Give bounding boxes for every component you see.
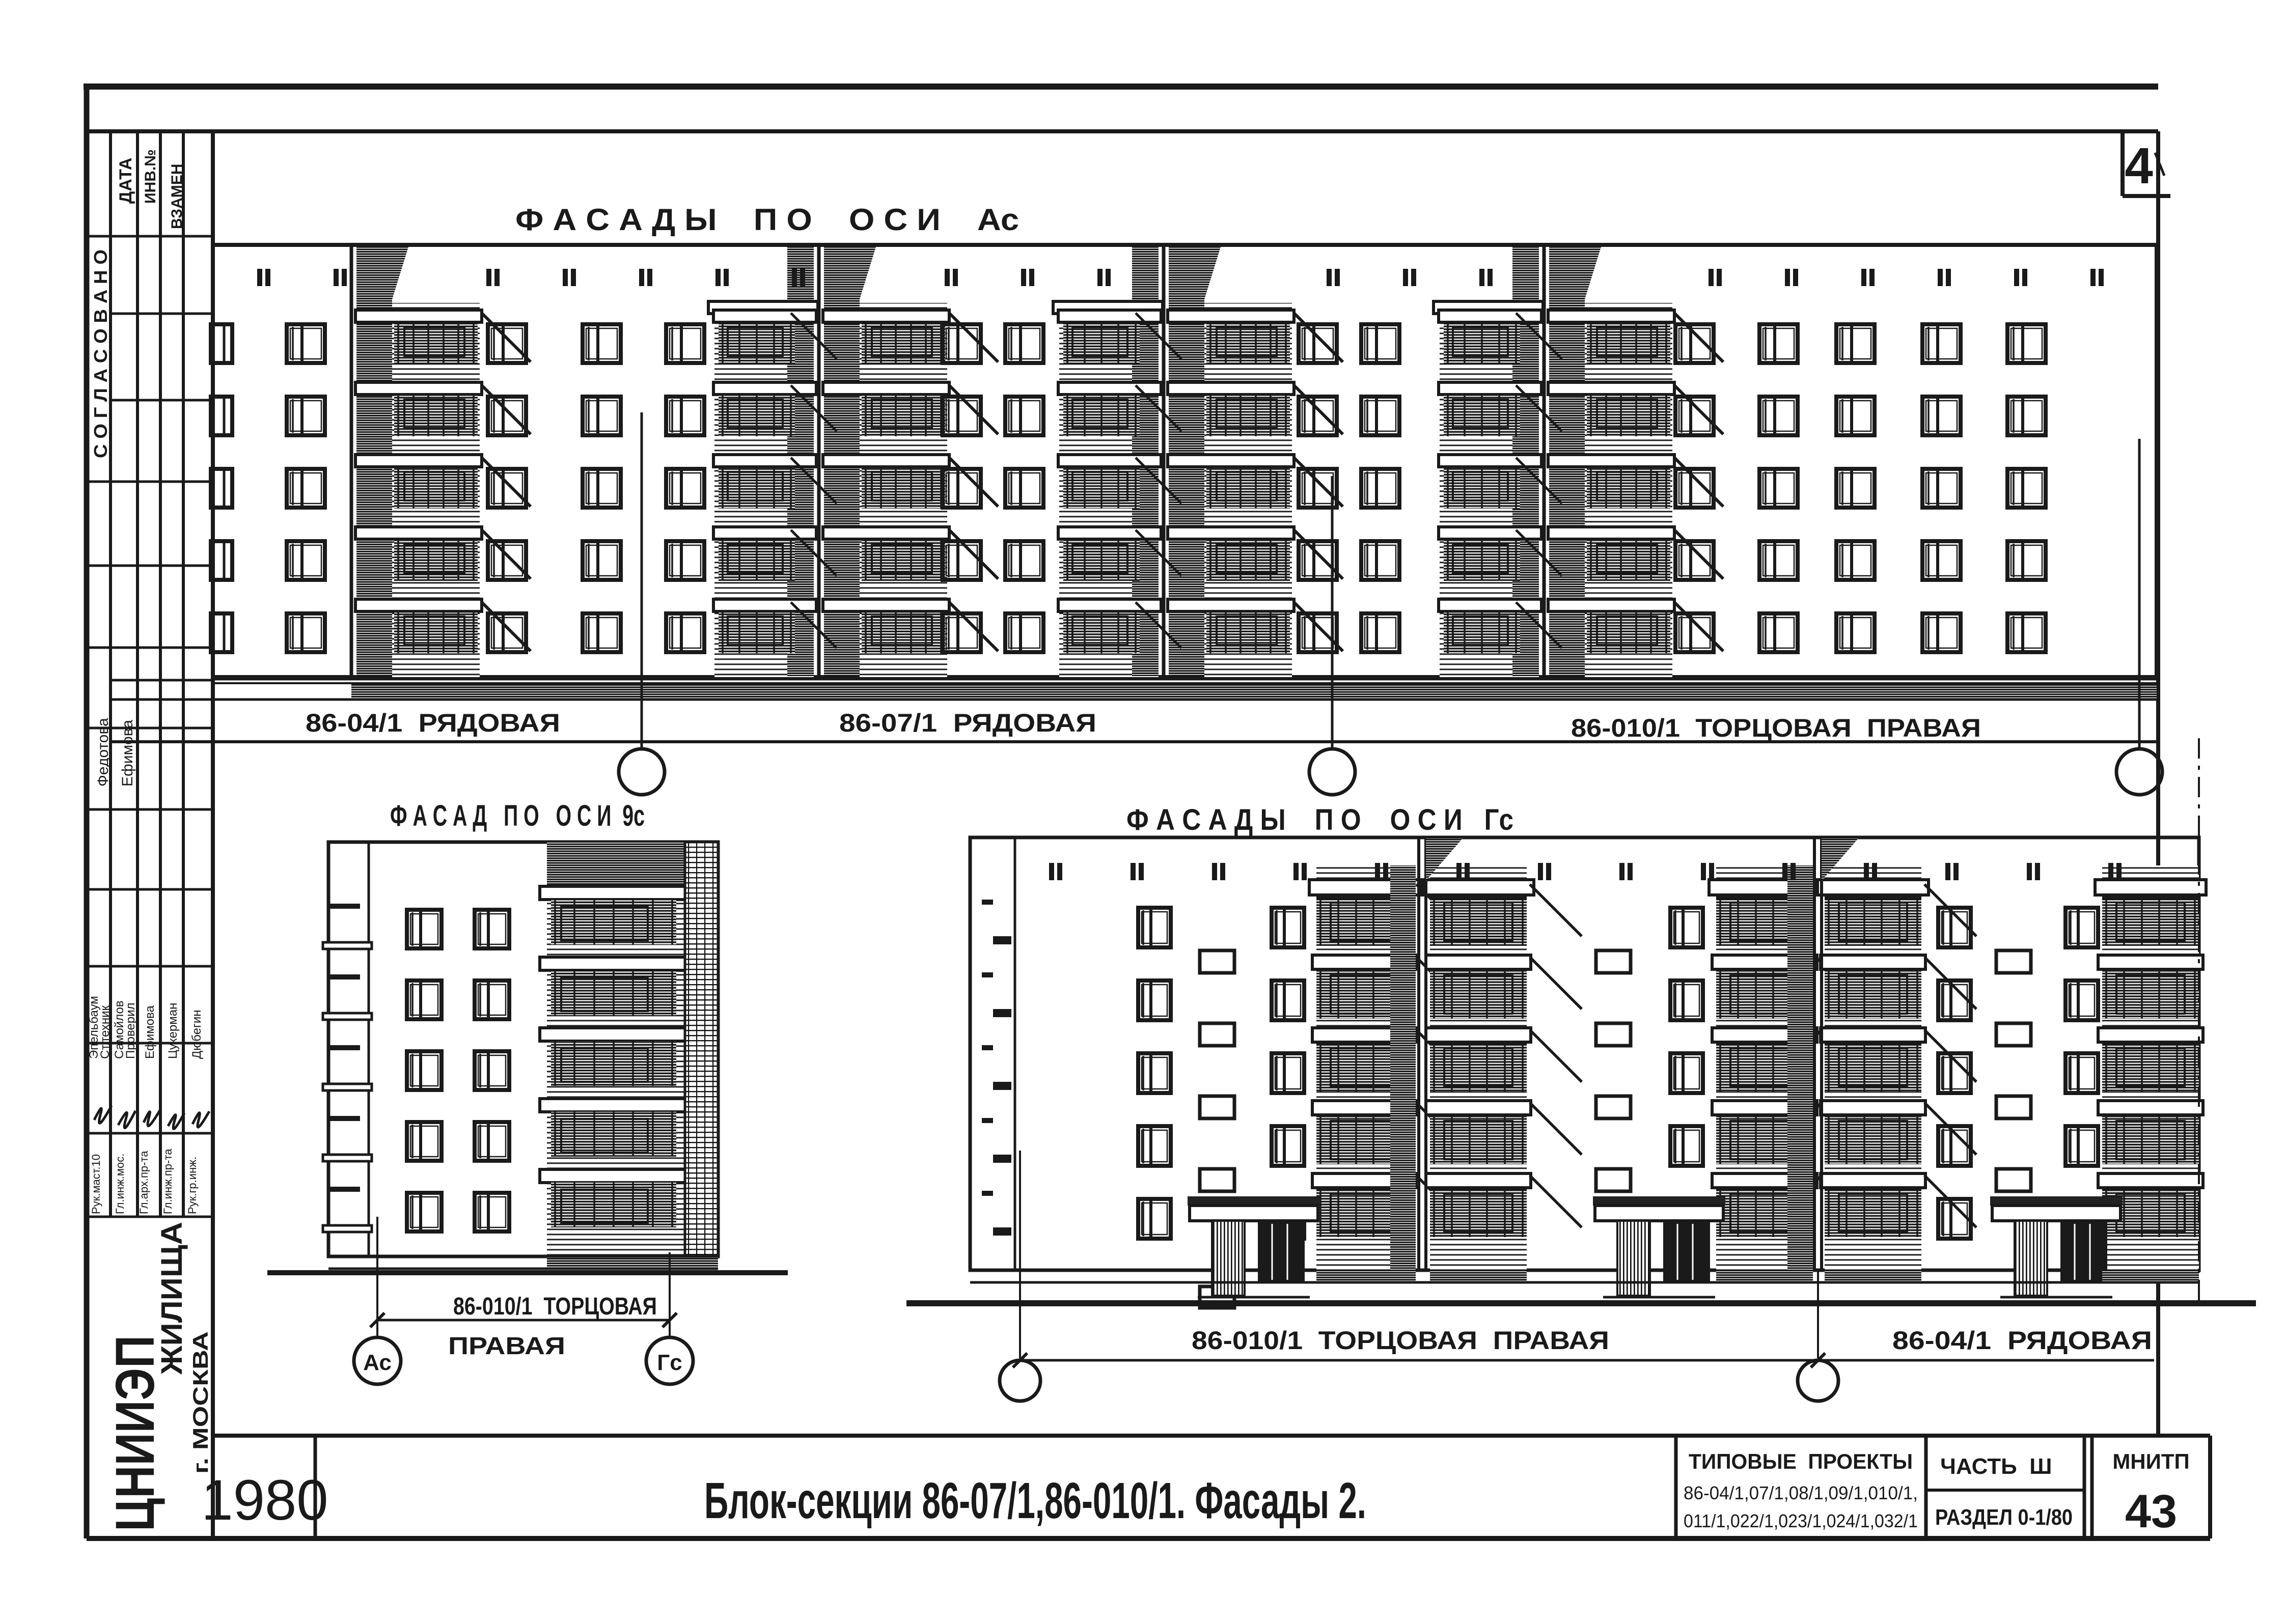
- svg-text:Ефимова: Ефимова: [143, 1005, 157, 1059]
- svg-text:ЧАСТЬ Ш: ЧАСТЬ Ш: [1940, 1454, 2052, 1479]
- svg-text:РАЗДЕЛ 0-1/80: РАЗДЕЛ 0-1/80: [1935, 1505, 2073, 1530]
- svg-text:ПРАВАЯ: ПРАВАЯ: [448, 1333, 565, 1360]
- svg-text:Цукерман: Цукерман: [166, 1003, 180, 1059]
- svg-text:Ф А С А Д П О О С И 9с: Ф А С А Д П О О С И 9с: [390, 799, 645, 832]
- svg-text:86-010/1 ТОРЦОВАЯ: 86-010/1 ТОРЦОВАЯ: [453, 1293, 657, 1320]
- svg-text:МНИТП: МНИТП: [2112, 1449, 2189, 1473]
- svg-text:С О Г Л А С О В А Н О: С О Г Л А С О В А Н О: [90, 249, 111, 458]
- svg-text:Ас: Ас: [363, 1350, 392, 1375]
- svg-text:4: 4: [2125, 137, 2153, 194]
- svg-text:ТИПОВЫЕ ПРОЕКТЫ: ТИПОВЫЕ ПРОЕКТЫ: [1689, 1449, 1913, 1473]
- svg-text:Ст.техник: Ст.техник: [98, 1005, 112, 1059]
- svg-text:Ефимова: Ефимова: [119, 720, 136, 787]
- svg-text:ВЗАМЕН: ВЗАМЕН: [169, 164, 185, 229]
- svg-text:Рук.гр.инж.: Рук.гр.инж.: [186, 1157, 199, 1214]
- svg-text:Гс: Гс: [657, 1350, 682, 1375]
- svg-text:Гл.инж.пр-та: Гл.инж.пр-та: [161, 1149, 174, 1214]
- svg-text:86-04/1,07/1,08/1,09/1,010/1,: 86-04/1,07/1,08/1,09/1,010/1,: [1684, 1482, 1918, 1503]
- svg-text:Ф А С А Д Ы П О О С И: Ф А С А Д Ы П О О С И Ас: [515, 203, 1019, 237]
- svg-text:Блок-секции 86-07/1,86-010/1.: Блок-секции 86-07/1,86-010/1. Фасады 2.: [704, 1472, 1366, 1529]
- svg-text:Рук.маст.10: Рук.маст.10: [90, 1154, 102, 1214]
- svg-text:Гл.арх.пр-та: Гл.арх.пр-та: [137, 1151, 150, 1214]
- svg-text:ДАТА: ДАТА: [116, 158, 135, 204]
- svg-text:86-04/1 РЯДОВАЯ: 86-04/1 РЯДОВАЯ: [1892, 1326, 2152, 1355]
- svg-text:ЖИЛИЩА: ЖИЛИЩА: [155, 1222, 188, 1375]
- svg-text:011/1,022/1,023/1,024/1,032/1: 011/1,022/1,023/1,024/1,032/1: [1684, 1510, 1918, 1531]
- svg-text:86-07/1 РЯДОВАЯ: 86-07/1 РЯДОВАЯ: [839, 709, 1096, 737]
- svg-text:г. МОСКВА: г. МОСКВА: [188, 1331, 212, 1474]
- svg-text:1980: 1980: [201, 1468, 328, 1532]
- svg-text:43: 43: [2125, 1486, 2177, 1537]
- svg-text:86-04/1 РЯДОВАЯ: 86-04/1 РЯДОВАЯ: [306, 709, 560, 737]
- svg-text:ИНВ.№: ИНВ.№: [142, 149, 159, 204]
- svg-text:Проверил: Проверил: [124, 1002, 137, 1059]
- svg-text:Федотова: Федотова: [95, 718, 112, 787]
- svg-text:Ф А С А Д Ы П О О С И: Ф А С А Д Ы П О О С И Гс: [1126, 803, 1513, 836]
- svg-text:86-010/1 ТОРЦОВАЯ ПРАВАЯ: 86-010/1 ТОРЦОВАЯ ПРАВАЯ: [1571, 714, 1981, 742]
- svg-text:Гл.инж.мос.: Гл.инж.мос.: [114, 1154, 126, 1214]
- svg-text:Дюбегин: Дюбегин: [190, 1010, 204, 1059]
- svg-text:86-010/1 ТОРЦОВАЯ ПРАВАЯ: 86-010/1 ТОРЦОВАЯ ПРАВАЯ: [1192, 1326, 1609, 1355]
